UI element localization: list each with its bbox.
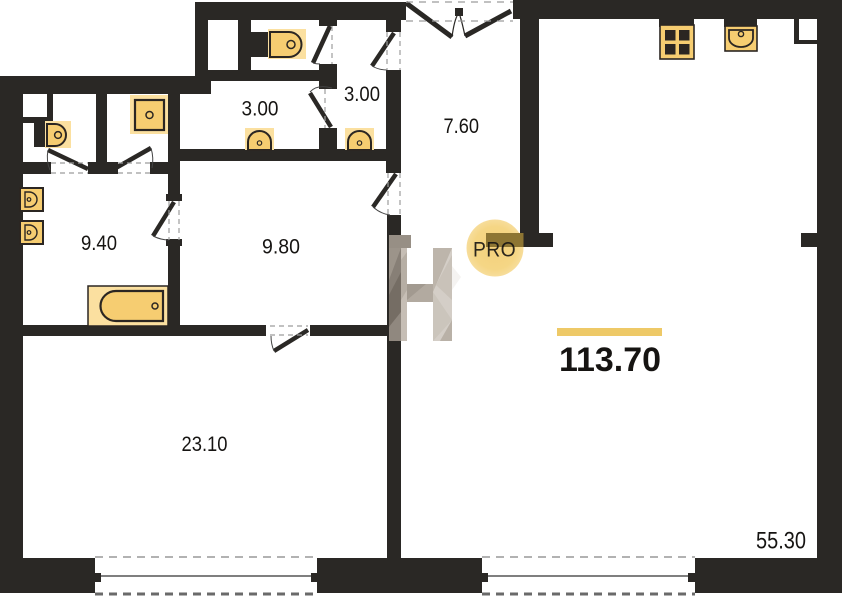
svg-text:3.00: 3.00 (344, 82, 380, 106)
svg-text:23.10: 23.10 (182, 432, 228, 456)
svg-text:9.80: 9.80 (262, 235, 300, 259)
svg-text:9.40: 9.40 (81, 231, 117, 255)
svg-text:113.70: 113.70 (559, 341, 661, 379)
svg-text:7.60: 7.60 (444, 114, 480, 138)
svg-text:55.30: 55.30 (756, 528, 806, 555)
svg-text:3.00: 3.00 (242, 97, 279, 121)
svg-text:PRO: PRO (473, 238, 516, 262)
